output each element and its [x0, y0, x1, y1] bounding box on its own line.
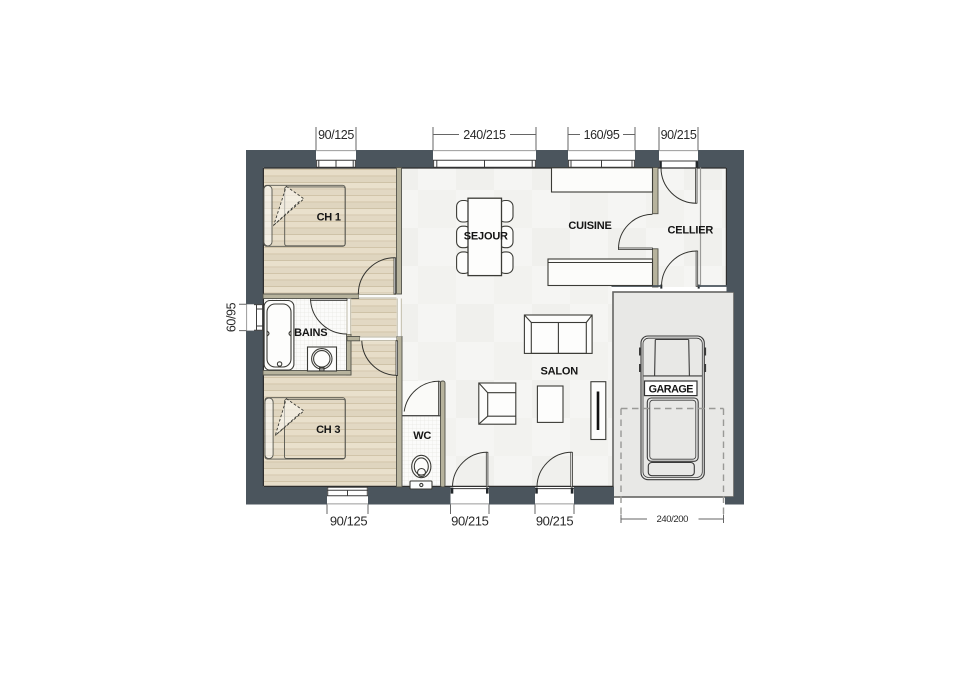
svg-text:160/95: 160/95	[584, 128, 620, 142]
svg-text:240/215: 240/215	[463, 128, 506, 142]
svg-text:BAINS: BAINS	[294, 327, 327, 339]
svg-text:90/215: 90/215	[451, 514, 489, 529]
svg-text:SEJOUR: SEJOUR	[464, 230, 508, 242]
svg-text:90/125: 90/125	[318, 128, 354, 142]
svg-text:WC: WC	[413, 430, 431, 442]
svg-text:90/215: 90/215	[661, 128, 697, 142]
svg-text:CELLIER: CELLIER	[667, 225, 713, 237]
svg-text:90/125: 90/125	[330, 514, 368, 529]
svg-text:240/200: 240/200	[657, 514, 689, 525]
svg-text:CUISINE: CUISINE	[568, 220, 611, 232]
svg-text:90/215: 90/215	[536, 514, 574, 529]
svg-text:GARAGE: GARAGE	[649, 383, 694, 395]
svg-text:CH 3: CH 3	[316, 424, 340, 436]
svg-text:CH 1: CH 1	[317, 212, 341, 224]
svg-text:SALON: SALON	[540, 366, 578, 378]
svg-text:60/95: 60/95	[225, 302, 239, 332]
